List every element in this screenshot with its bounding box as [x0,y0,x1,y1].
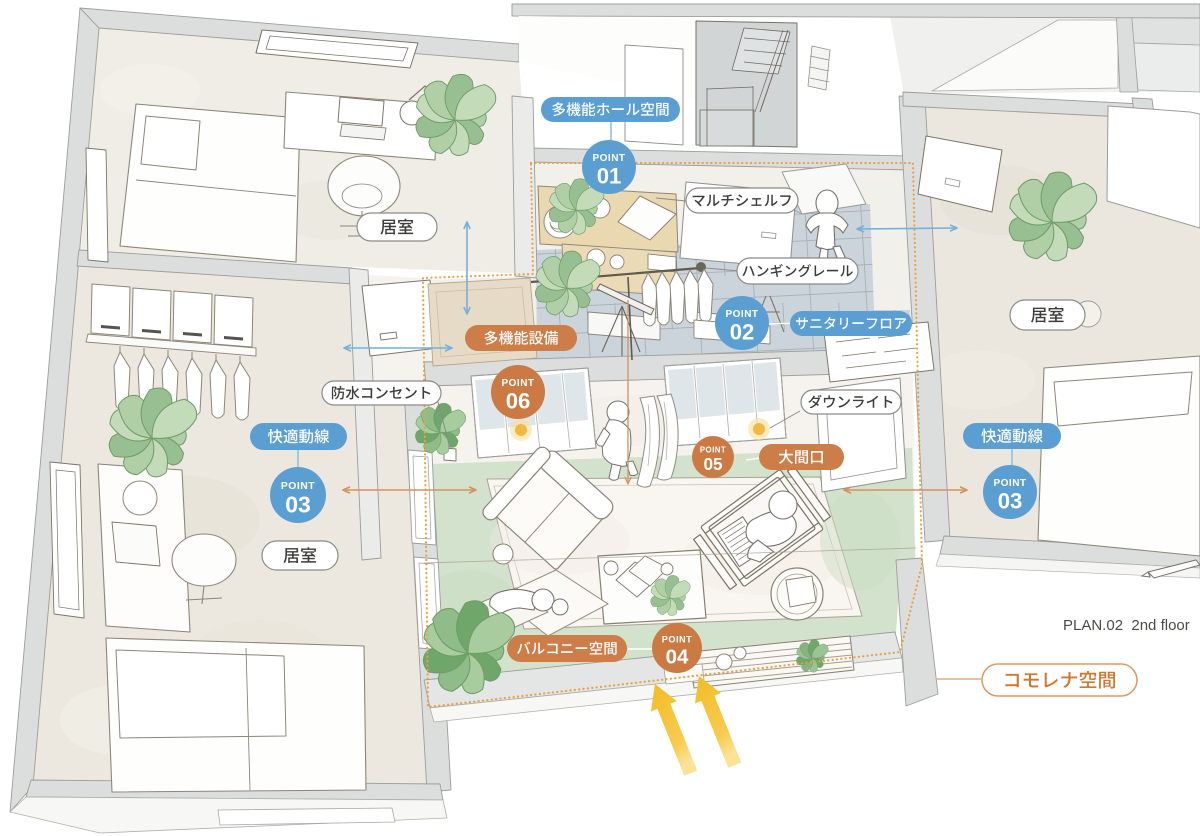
svg-text:POINT: POINT [662,635,693,645]
svg-text:POINT: POINT [993,478,1026,489]
svg-text:04: 04 [666,646,689,669]
svg-text:POINT: POINT [592,153,625,164]
svg-text:POINT: POINT [700,445,726,454]
svg-text:POINT: POINT [501,378,534,389]
svg-text:POINT: POINT [281,481,315,492]
svg-text:03: 03 [285,491,311,517]
svg-text:PLAN.02 2nd floor: PLAN.02 2nd floor [1063,617,1190,634]
svg-text:03: 03 [998,489,1023,514]
svg-text:02: 02 [730,320,755,345]
svg-text:06: 06 [506,389,531,414]
svg-text:POINT: POINT [725,309,758,320]
svg-text:05: 05 [703,454,723,474]
svg-text:01: 01 [597,164,622,189]
